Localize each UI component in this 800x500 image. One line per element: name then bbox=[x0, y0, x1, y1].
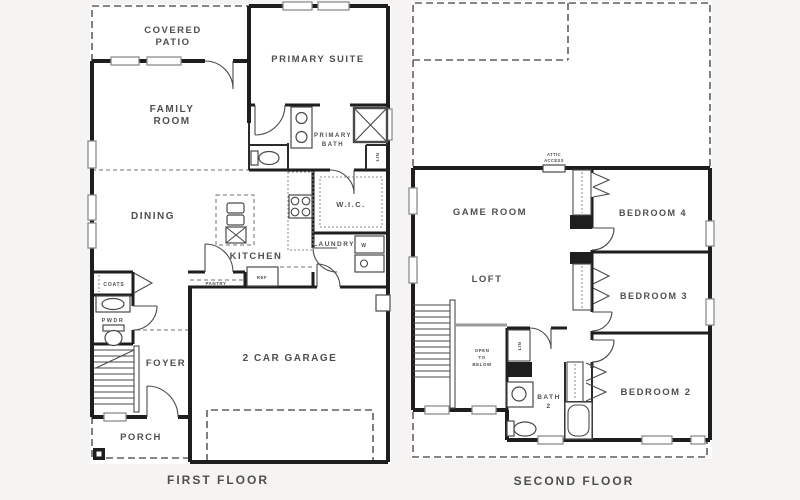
primary-bath-label2: BATH bbox=[322, 142, 344, 148]
window bbox=[409, 188, 417, 214]
window bbox=[104, 413, 126, 421]
wall-block bbox=[570, 215, 592, 229]
bedroom4-label: BEDROOM 4 bbox=[619, 208, 687, 218]
bath2-toilet-tank bbox=[507, 421, 514, 436]
open-to-below-label3: BELOW bbox=[472, 362, 492, 367]
covered-patio-label2: PATIO bbox=[155, 37, 190, 48]
vanity-sink bbox=[296, 113, 307, 124]
wall-block bbox=[570, 252, 592, 264]
toilet-bowl bbox=[259, 152, 279, 165]
tub bbox=[565, 402, 592, 439]
window bbox=[409, 257, 417, 283]
primary-bath-label: PRIMARY bbox=[314, 133, 352, 139]
wic-label: W.I.C. bbox=[336, 200, 365, 209]
pantry-label: PANTRY bbox=[206, 281, 227, 286]
open-to-below-label: OPEN bbox=[475, 348, 490, 353]
family-room-label2: ROOM bbox=[153, 116, 190, 127]
window bbox=[88, 141, 96, 168]
attic-access-label2: ACCESS bbox=[544, 158, 564, 163]
window bbox=[706, 299, 714, 325]
first-floor-title: FIRST FLOOR bbox=[167, 473, 269, 487]
island-sink bbox=[227, 215, 244, 225]
window bbox=[111, 57, 139, 65]
powder-label: PWDR bbox=[102, 318, 125, 324]
bath2-sink bbox=[512, 387, 526, 401]
washer-label: W bbox=[361, 243, 367, 249]
bath2-toilet-bowl bbox=[514, 422, 536, 436]
dining-label: DINING bbox=[131, 211, 175, 222]
porch-label: PORCH bbox=[120, 432, 162, 443]
first-floor-plan: COVERED PATIO PRIMARY SUITE FAMILY ROOM … bbox=[88, 2, 392, 487]
coats-label: COATS bbox=[103, 282, 124, 288]
dryer bbox=[355, 255, 384, 272]
window bbox=[318, 2, 349, 10]
ref-label: REF bbox=[257, 275, 268, 280]
floorplan-page: COVERED PATIO PRIMARY SUITE FAMILY ROOM … bbox=[0, 0, 800, 500]
powder-toilet-bowl bbox=[105, 331, 122, 346]
garage-label: 2 CAR GARAGE bbox=[243, 353, 338, 364]
attic-access-hatch bbox=[543, 165, 565, 172]
washer bbox=[355, 236, 384, 253]
bath2-label2: 2 bbox=[546, 403, 551, 410]
window bbox=[706, 221, 714, 246]
powder-sink bbox=[102, 299, 124, 310]
bedroom3-label: BEDROOM 3 bbox=[620, 291, 688, 301]
attic-access-label: ATTIC bbox=[547, 152, 561, 157]
bedroom2-label: BEDROOM 2 bbox=[620, 387, 691, 398]
primary-suite-label: PRIMARY SUITE bbox=[271, 54, 364, 65]
window bbox=[88, 195, 96, 220]
linen-label-sf: LIN bbox=[517, 342, 522, 351]
window bbox=[283, 2, 312, 10]
window bbox=[147, 57, 181, 65]
garage-wall-panel bbox=[376, 295, 390, 311]
game-room-label: GAME ROOM bbox=[453, 207, 527, 218]
wall-block bbox=[508, 362, 532, 377]
toilet-tank bbox=[251, 151, 258, 165]
window bbox=[88, 223, 96, 248]
open-to-below-label2: TO bbox=[478, 355, 485, 360]
island-sink bbox=[227, 203, 244, 213]
second-floor-plan: ATTIC ACCESS GAME ROOM BEDROOM 4 LOFT BE… bbox=[409, 1, 714, 488]
porch-post-center bbox=[97, 452, 102, 457]
family-room-label: FAMILY bbox=[150, 104, 195, 115]
vanity-sink bbox=[296, 132, 307, 143]
kitchen-label: KITCHEN bbox=[230, 251, 283, 262]
covered-patio-label: COVERED bbox=[144, 25, 201, 36]
bath2-label: BATH bbox=[537, 394, 561, 401]
window bbox=[425, 406, 449, 414]
window bbox=[642, 436, 672, 444]
foyer-label: FOYER bbox=[146, 358, 186, 369]
second-floor-title: SECOND FLOOR bbox=[514, 474, 635, 488]
floorplan-drawing: COVERED PATIO PRIMARY SUITE FAMILY ROOM … bbox=[0, 0, 800, 500]
window bbox=[472, 406, 496, 414]
linen-label-ff: LIN bbox=[375, 153, 380, 162]
window bbox=[538, 436, 563, 444]
loft-label: LOFT bbox=[472, 274, 503, 285]
window bbox=[691, 436, 705, 444]
laundry-label: LAUNDRY bbox=[313, 241, 355, 248]
